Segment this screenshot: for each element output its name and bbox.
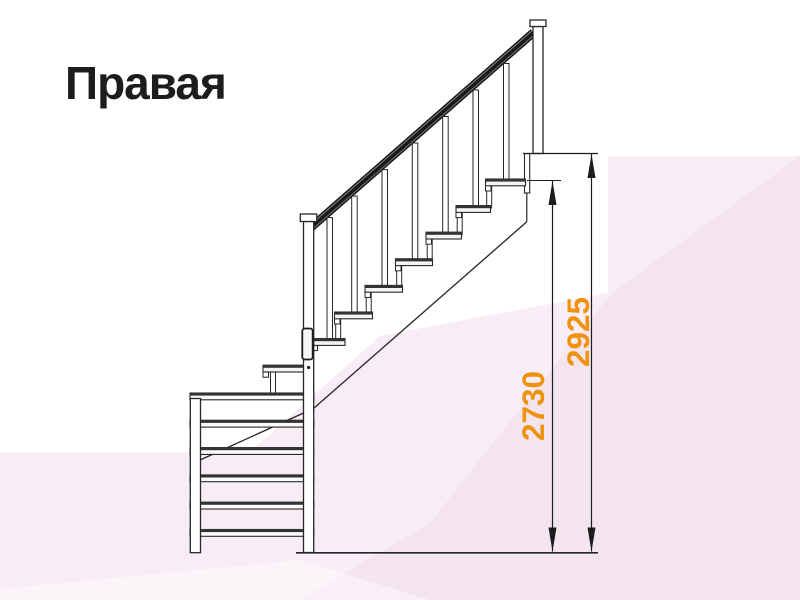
top-post — [530, 20, 546, 154]
arrow-up-icon — [588, 154, 596, 178]
lower-winder-section — [190, 393, 315, 537]
dimension-label-2925: 2925 — [561, 262, 595, 402]
winder-bars — [190, 393, 314, 536]
handrail — [310, 31, 535, 229]
post-fixing-dot — [307, 366, 310, 369]
winder-top-bands — [190, 393, 315, 532]
page-title: Правая — [65, 56, 226, 110]
arrow-down-icon — [549, 528, 557, 552]
post-bracket — [302, 329, 312, 360]
arrow-down-icon — [588, 528, 596, 552]
landing-front-edge — [525, 154, 530, 222]
dimension-label-2730: 2730 — [516, 336, 550, 476]
diagram-page: Правая 2730 2925 — [0, 0, 800, 600]
left-post — [190, 399, 200, 553]
arrow-up-icon — [549, 181, 557, 205]
